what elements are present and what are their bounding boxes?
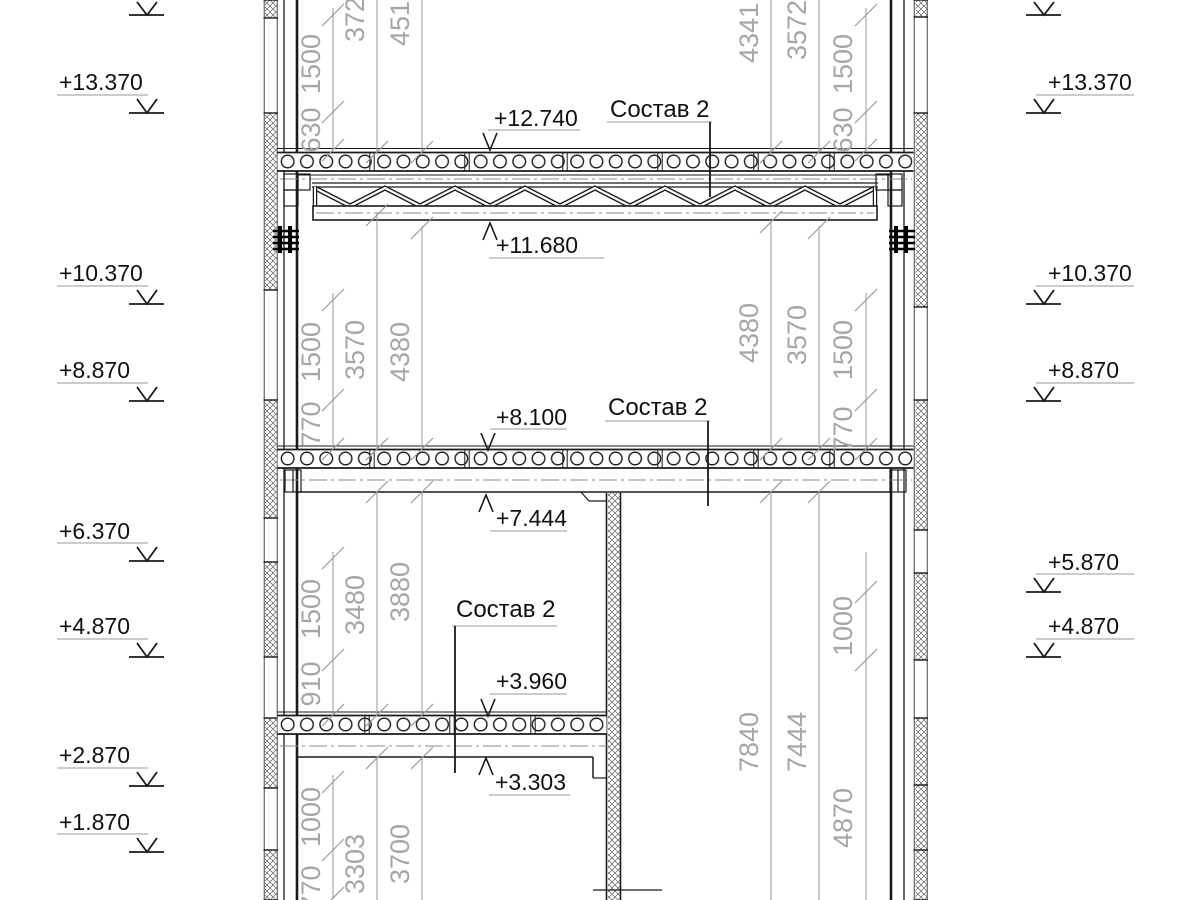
elevation-marks-left: +13.370 +10.370 +8.870 +6.370 +4.870 +2.…	[57, 2, 164, 852]
level-label: +3.303	[495, 769, 566, 795]
dim-label: 1000	[296, 787, 326, 847]
dim-label: 4510	[385, 0, 415, 46]
elevation-label: +5.870	[1048, 549, 1119, 575]
dim-label: 3700	[385, 824, 415, 884]
dim-label: 630	[296, 107, 326, 152]
elevation-label: +2.870	[59, 742, 130, 768]
composition-callouts: Состав 2 Состав 2 Состав 2	[452, 96, 712, 773]
level-label: +11.680	[496, 232, 578, 258]
composition-label: Состав 2	[456, 596, 556, 623]
dim-label: 3570	[782, 305, 812, 365]
dim-label: 4380	[385, 322, 415, 382]
elevation-label: +13.370	[59, 69, 143, 95]
composition-label: Состав 2	[608, 394, 708, 421]
level-label: +12.740	[494, 105, 578, 131]
dim-label: 7840	[734, 712, 764, 772]
elevation-label: +8.870	[59, 357, 130, 383]
elevation-marks-right: +13.370 +10.370 +8.870 +5.870 +4.870	[1026, 2, 1134, 657]
composition-label: Состав 2	[610, 96, 710, 123]
dim-label: 3570	[340, 320, 370, 380]
section-drawing: 1500 630 1500 770 1500 910 1000 770 3720…	[0, 0, 1200, 900]
elevation-label: +1.870	[59, 809, 130, 835]
dim-label: 1500	[296, 34, 326, 94]
dim-label: 3480	[340, 575, 370, 635]
dim-label: 3720	[340, 0, 370, 42]
dim-label: 1000	[828, 596, 858, 656]
dim-label: 770	[828, 406, 858, 451]
elevation-label: +4.870	[59, 613, 130, 639]
dim-label: 3880	[385, 562, 415, 622]
dim-label: 770	[296, 865, 326, 900]
dim-label: 910	[296, 661, 326, 706]
dim-label: 3572	[782, 0, 812, 60]
elevation-label: +8.870	[1048, 357, 1119, 383]
dim-label: 630	[828, 107, 858, 152]
elevation-label: +10.370	[1048, 260, 1132, 286]
dim-label: 770	[296, 401, 326, 446]
dim-label: 4870	[828, 788, 858, 848]
dim-label: 1500	[828, 320, 858, 380]
dim-label: 1500	[296, 579, 326, 639]
hollow-core-slab-3	[278, 712, 663, 890]
interior-wall	[581, 492, 621, 900]
elevation-label: +13.370	[1048, 69, 1132, 95]
elevation-label: +6.370	[59, 518, 130, 544]
left-cladding-hatch	[264, 0, 279, 900]
level-label: +3.960	[496, 668, 567, 694]
drawing-canvas: 1500 630 1500 770 1500 910 1000 770 3720…	[0, 0, 1200, 900]
dim-label: 7444	[782, 712, 812, 772]
dim-label: 3303	[340, 834, 370, 894]
dim-label: 4380	[734, 303, 764, 363]
dim-label: 1500	[828, 34, 858, 94]
elevation-label: +10.370	[59, 260, 143, 286]
right-cladding-hatch	[914, 0, 929, 900]
dim-label: 4341	[734, 3, 764, 63]
bolted-connection-right	[889, 226, 915, 253]
elevation-label: +4.870	[1048, 613, 1119, 639]
dim-label: 1500	[296, 322, 326, 382]
level-label: +8.100	[496, 404, 567, 430]
level-label: +7.444	[496, 505, 567, 531]
